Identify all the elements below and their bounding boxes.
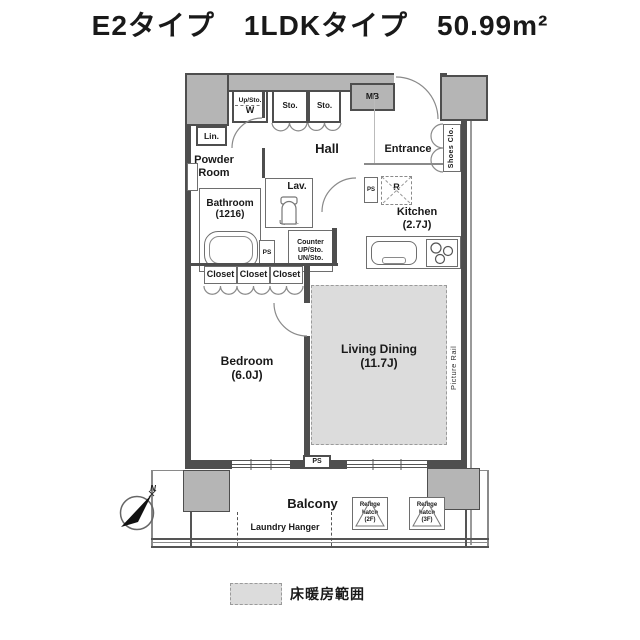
hall-label: Hall <box>300 141 354 157</box>
shoes-closet-box: Shoes Clo. <box>443 124 461 172</box>
pipe-space-kitchen-box: PS <box>364 177 378 203</box>
bedroom-door-arc <box>274 303 307 336</box>
powder-room-label: Powder Room <box>190 150 238 184</box>
living-dining-label: Living Dining (11.7J) <box>329 341 429 373</box>
legend-floor-heating-swatch <box>230 583 282 605</box>
counter-right-wall <box>332 228 337 266</box>
washer-label: W <box>235 105 265 115</box>
pipe-space-bath-label: PS <box>263 250 272 257</box>
refuge-hatch-3f-label: Refuge hatch (3F) <box>409 499 445 528</box>
stove-box <box>426 239 458 267</box>
closet-box-2: Closet <box>237 266 270 284</box>
storage-box-1: Sto. <box>272 90 308 123</box>
storage-2-label: Sto. <box>317 102 332 110</box>
linen-label: Lin. <box>204 132 219 141</box>
meter-box-label: MB <box>366 92 379 102</box>
shoes-closet-label: Shoes Clo. <box>448 127 455 168</box>
powder-hall-wall-upper <box>262 91 265 118</box>
picture-rail-label: Picture Rail <box>449 325 460 410</box>
linen-box: Lin. <box>196 126 227 146</box>
entrance-step-line <box>374 95 375 163</box>
meter-box: MB <box>350 83 395 111</box>
pipe-space-balcony-label: PS <box>312 458 321 465</box>
refuge-hatch-2f-label: Refuge hatch (2F) <box>352 499 388 528</box>
corridor-top-right-block <box>440 75 488 121</box>
legend-floor-heating-label: 床暖房範囲 <box>290 585 400 603</box>
kitchen-sink-inner <box>382 257 406 264</box>
lavatory-label: Lav. <box>283 181 311 193</box>
railing-line-2 <box>151 542 489 543</box>
closet-2-label: Closet <box>240 270 268 279</box>
bottom-wall-left <box>185 460 232 469</box>
storage-box-2: Sto. <box>308 90 341 123</box>
laundry-hanger-line-right <box>331 512 332 546</box>
closet-1-label: Closet <box>207 270 235 279</box>
powder-hall-wall-lower <box>262 148 265 178</box>
closet-box-3: Closet <box>270 266 303 284</box>
balcony-top-left-line <box>151 470 185 471</box>
refrigerator-label: R <box>381 181 412 193</box>
balcony-pillar-left <box>183 470 230 512</box>
kitchen-label: Kitchen (2.7J) <box>387 205 447 233</box>
entrance-doorway-gap <box>394 71 440 93</box>
bedroom-living-wall-lower <box>304 336 310 462</box>
closet-3-label: Closet <box>273 270 301 279</box>
entrance-label: Entrance <box>378 142 438 156</box>
compass-needle <box>121 494 152 527</box>
closet-bifold-door-arcs <box>204 286 303 294</box>
living-window <box>347 460 427 468</box>
railing-post-left <box>190 512 192 547</box>
balcony-right-edge <box>487 470 489 548</box>
bedroom-window <box>232 460 290 468</box>
pipe-space-kitchen-label: PS <box>367 187 375 193</box>
storage-1-label: Sto. <box>282 102 297 110</box>
laundry-hanger-label: Laundry Hanger <box>240 521 330 533</box>
balcony-left-edge <box>151 470 153 548</box>
upper-storage-label: Up/Sto. <box>239 98 262 105</box>
counter-storage-label: Counter UP/Sto. UN/Sto. <box>297 239 324 263</box>
bedroom-label: Bedroom (6.0J) <box>207 352 287 386</box>
balcony-label: Balcony <box>275 496 350 512</box>
railing-post-right <box>465 510 467 547</box>
right-outer-wall <box>461 119 467 469</box>
floor-plan: MB Up/Sto. W Sto. Sto. Lin. Powder Room … <box>0 0 640 640</box>
closet-box-1: Closet <box>204 266 237 284</box>
corridor-top-left-block <box>185 73 229 126</box>
railing-line-3 <box>151 546 489 548</box>
bathtub-inner-line <box>209 236 253 264</box>
compass-north-label: N <box>147 484 159 494</box>
lav-storage-label: Up/Sto. <box>276 219 302 227</box>
railing-line-1 <box>151 538 489 540</box>
bathroom-label: Bathroom (1216) <box>201 194 259 224</box>
pipe-space-balcony-box: PS <box>303 455 331 469</box>
laundry-hanger-line-left <box>237 512 238 546</box>
storage-bifold-door-arcs <box>272 123 341 131</box>
hall-living-door-arc <box>322 178 356 212</box>
bedroom-living-wall-upper <box>304 263 310 303</box>
